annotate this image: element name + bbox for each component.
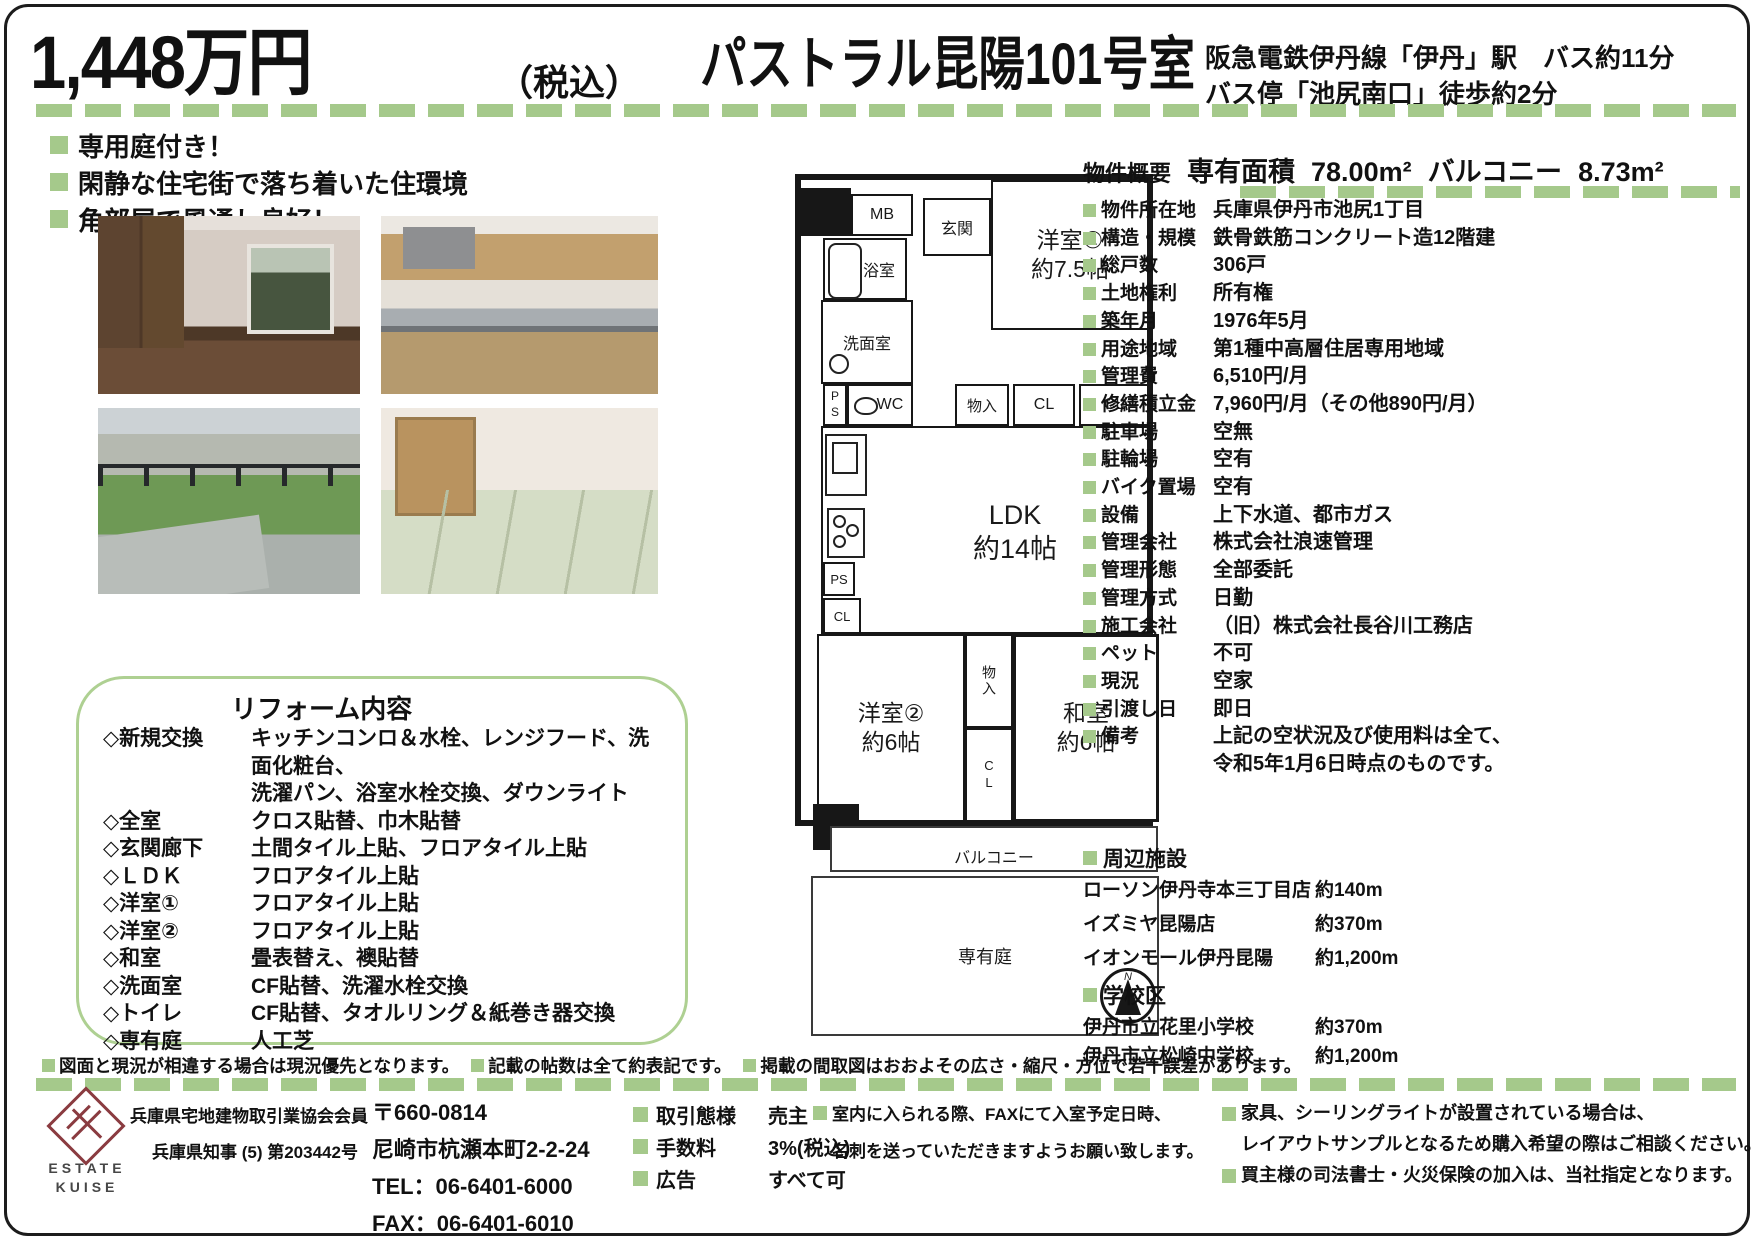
postal-code: 〒660-0814 [372,1094,590,1131]
overview-value: 株式会社浪速管理 [1213,529,1373,557]
room-label: WC [877,396,904,414]
overview-label: 修繕積立金 [1101,391,1213,419]
stove-icon [827,508,865,558]
overview-label: 引渡し日 [1101,696,1213,724]
reform-value: CF貼替、タオルリング＆紙巻き器交換 [251,1000,615,1028]
room-label: PS [830,572,847,587]
disclaimer-item: 図面と現況が相違する場合は現況優先となります。 [42,1053,459,1078]
fax-notice-line1: 室内に入られる際、FAXにて入室予定日時、 [832,1100,1171,1125]
overview-label: 築年月 [1101,308,1213,336]
overview-row: 管理会社株式会社浪速管理 [1083,529,1683,557]
reform-label: ◇専有庭 [103,1028,251,1056]
fax-notice-line2: 名刺を送っていただきますようお願い致します。 [813,1137,1203,1162]
bullet-square-icon [42,1059,55,1072]
bullet-square-icon [1083,647,1096,660]
bullet-square-icon [1083,620,1096,633]
bullet-square-icon [1083,703,1096,716]
bullet-square-icon [633,1107,648,1122]
toilet-icon [854,397,878,415]
room-size: 約6帖 [858,728,925,757]
overview-value: 306戸 [1213,252,1266,280]
disclaimer-item: 記載の帖数は全て約表記です。 [471,1053,731,1078]
reform-value: CF貼替、洗濯水栓交換 [251,973,468,1001]
overview-value: 不可 [1213,640,1253,668]
overview-value: 空家 [1213,668,1253,696]
overview-row: 総戸数306戸 [1083,252,1683,280]
overview-value: 6,510円/月 [1213,363,1309,391]
overview-row: 築年月1976年5月 [1083,308,1683,336]
overview-label: 施工会社 [1101,613,1213,641]
overview-row: 備考上記の空状況及び使用料は全て、 令和5年1月6日時点のものです。 [1083,723,1683,778]
overview-row: バイク置場空有 [1083,474,1683,502]
office-contact: 〒660-0814 尼崎市杭瀬本町2-2-24 TEL：06-6401-6000… [372,1094,590,1242]
balcony-value: 8.73m² [1578,157,1664,188]
school-distance: 約1,200m [1315,1045,1398,1069]
overview-label: 設備 [1101,502,1213,530]
nearby-name: イオンモール伊丹昆陽 [1083,948,1273,969]
access-info: 阪急電鉄伊丹線「伊丹」駅 バス約11分 バス停「池尻南口」徒歩約2分 [1205,40,1675,112]
reform-value: キッチンコンロ＆水栓、レンジフード、洗面化粧台、 洗濯パン、浴室水栓交換、ダウン… [251,725,667,808]
overview-row: 用途地域第1種中高層住居専用地域 [1083,336,1683,364]
room-name: LDK [973,498,1057,532]
reform-label: ◇玄関廊下 [103,835,251,863]
reform-value: フロアタイル上貼 [251,918,419,946]
overview-label: 管理会社 [1101,529,1213,557]
area-label: 専有面積 [1187,150,1295,189]
overview-value: 全部委託 [1213,557,1293,585]
overview-label: 土地権利 [1101,280,1213,308]
overview-value: 空有 [1213,474,1253,502]
overview-label: 駐車場 [1101,419,1213,447]
overview-value: 空有 [1213,446,1253,474]
overview-row: 駐輪場空有 [1083,446,1683,474]
footer-divider [36,1078,1736,1091]
reform-value: フロアタイル上貼 [251,863,419,891]
estate-kuise-logo: ESTATE KUISE [44,1094,130,1204]
overview-row: ペット不可 [1083,640,1683,668]
bullet-square-icon [813,1106,827,1120]
bathtub-icon [828,243,862,299]
floorplan-room-genkan: 玄関 [923,198,991,256]
association-member: 兵庫県宅地建物取引業協会会員 [130,1102,368,1127]
photo-japanese-room [381,408,658,594]
room-size: 約14帖 [973,532,1057,566]
overview-label: 管理方式 [1101,585,1213,613]
nearby-distance: 約370m [1315,913,1383,937]
overview-section-label: 物件概要 [1083,156,1171,188]
overview-value: 兵庫県伊丹市池尻1丁目 [1213,197,1424,225]
bullet-square-icon [1083,481,1096,494]
office-fax: FAX：06-6401-6010 [372,1205,590,1242]
overview-value: 鉄骨鉄筋コンクリート造12階建 [1213,225,1495,253]
price: 1,448万円 [30,22,311,104]
floorplan-ps: PS [823,384,847,426]
overview-header: 物件概要 専有面積 78.00m² バルコニー 8.73m² [1083,150,1664,189]
room-label: 物入 [979,665,999,697]
overview-row: 設備上下水道、都市ガス [1083,502,1683,530]
floorplan-closet: CL [823,598,861,634]
school-item: 伊丹市立花里小学校約370m [1083,1016,1683,1045]
nearby-item: ローソン伊丹寺本三丁目店約140m [1083,879,1683,913]
bullet-square-icon [1083,730,1096,743]
room-label: CL [982,758,997,792]
overview-label: 構造・規模 [1101,225,1213,253]
nearby-distance: 約1,200m [1315,947,1398,971]
overview-row: 土地権利所有権 [1083,280,1683,308]
floorplan-wc: WC [847,384,913,426]
bullet-square-icon [743,1059,756,1072]
term-value: すべて可 [768,1164,846,1193]
furniture-notice-line1: 家具、シーリングライトが設置されている場合は、 [1241,1098,1654,1129]
nearby-item: イオンモール伊丹昆陽約1,200m [1083,947,1683,981]
overview-row: 引渡し日即日 [1083,696,1683,724]
bullet-square-icon [1083,592,1096,605]
office-tel: TEL：06-6401-6000 [372,1168,590,1205]
term-label: 手数料 [656,1132,760,1161]
disclaimer-text: 掲載の間取図はおおよその広さ・縮尺・方位で若干誤差があります。 [760,1053,1301,1078]
bullet-square-icon [1083,426,1096,439]
overview-label: 用途地域 [1101,336,1213,364]
overview-row: 駐車場空無 [1083,419,1683,447]
bullet-square-icon [1083,370,1096,383]
overview-row: 構造・規模鉄骨鉄筋コンクリート造12階建 [1083,225,1683,253]
nearby-name: ローソン伊丹寺本三丁目店 [1083,880,1311,901]
reform-label: ◇和室 [103,945,251,973]
room-label: 物入 [967,395,997,416]
overview-label: 現況 [1101,668,1213,696]
overview-value: 上下水道、都市ガス [1213,502,1393,530]
room-label: LDK 約14帖 [973,498,1057,566]
overview-row: 管理費6,510円/月 [1083,363,1683,391]
room-label: バルコニー [954,844,1034,868]
overview-value: （旧）株式会社長谷川工務店 [1213,613,1473,641]
bullet-square-icon [1083,988,1097,1002]
bullet-square-icon [1083,536,1096,549]
bullet-square-icon [50,210,68,228]
room-label: PS [828,389,842,421]
floorplan-storage: 物入 [965,634,1013,728]
insurance-notice: 買主様の司法書士・火災保険の加入は、当社指定となります。 [1241,1160,1743,1191]
room-label: MB [870,206,894,224]
access-line-1: 阪急電鉄伊丹線「伊丹」駅 バス約11分 [1205,40,1675,76]
reform-value: 畳表替え、襖貼替 [251,945,419,973]
bullet-square-icon [1083,232,1096,245]
room-label: CL [1034,396,1054,414]
bullet-square-icon [1083,398,1096,411]
overview-label: ペット [1101,640,1213,668]
nearby-item: イズミヤ昆陽店約370m [1083,913,1683,947]
reform-label: ◇洋室② [103,918,251,946]
feature-item: 閑静な住宅街で落ち着いた住環境 [50,167,690,197]
reform-value: 人工芝 [251,1028,314,1056]
office-address: 尼崎市杭瀬本町2-2-24 [372,1131,590,1168]
reform-label: ◇洋室① [103,890,251,918]
bullet-square-icon [50,173,68,191]
furniture-notice-line2: レイアウトサンプルとなるため購入希望の際はご相談ください。 [1222,1129,1754,1160]
header-divider [36,104,1736,117]
bullet-square-icon [1083,675,1096,688]
disclaimer-text: 記載の帖数は全て約表記です。 [488,1053,731,1078]
floorplan-storage: 物入 [955,384,1009,426]
overview-row: 管理方式日勤 [1083,585,1683,613]
room-label: 洗面室 [843,330,891,354]
kitchen-counter-icon [825,434,867,496]
term-label: 広告 [656,1164,760,1193]
overview-value: 即日 [1213,696,1253,724]
photo-living-room [98,216,360,394]
bullet-square-icon [1083,259,1096,272]
bullet-square-icon [1222,1169,1236,1183]
disclaimer-item: 掲載の間取図はおおよその広さ・縮尺・方位で若干誤差があります。 [743,1053,1301,1078]
right-notices: 家具、シーリングライトが設置されている場合は、 レイアウトサンプルとなるため購入… [1222,1098,1754,1191]
disclaimer-text: 図面と現況が相違する場合は現況優先となります。 [59,1053,459,1078]
reform-value: フロアタイル上貼 [251,890,419,918]
nearby-title: 周辺施設 [1103,843,1187,873]
photo-kitchen [381,216,658,394]
fax-notice: 室内に入られる際、FAXにて入室予定日時、 名刺を送っていただきますようお願い致… [813,1100,1203,1162]
term-value: 売主 [768,1100,808,1129]
floorplan-closet: CL [965,728,1013,822]
room-label: CL [834,609,851,624]
overview-label: バイク置場 [1101,474,1213,502]
area-value: 78.00m² [1311,157,1412,188]
reform-label: ◇ＬＤＫ [103,863,251,891]
reform-value: 土間タイル上貼、フロアタイル上貼 [251,835,587,863]
room-name: 洋室② [858,699,925,728]
reform-title: リフォーム内容 [103,693,667,725]
license-number: 兵庫県知事 (5) 第203442号 [152,1138,358,1163]
overview-label: 物件所在地 [1101,197,1213,225]
property-name: パストラル昆陽101号室 [700,26,1195,104]
reform-value: クロス貼替、巾木貼替 [251,808,461,836]
feature-text: 閑静な住宅街で落ち着いた住環境 [78,164,468,201]
overview-label: 管理費 [1101,363,1213,391]
overview-value: 所有権 [1213,280,1273,308]
nearby-name: イズミヤ昆陽店 [1083,914,1215,935]
overview-label: 駐輪場 [1101,446,1213,474]
bullet-square-icon [633,1139,648,1154]
overview-value: 1976年5月 [1213,308,1309,336]
bullet-square-icon [1083,564,1096,577]
floorplan-room-yoshitsu2: 洋室② 約6帖 [817,634,965,822]
reform-box: リフォーム内容 ◇新規交換キッチンコンロ＆水栓、レンジフード、洗面化粧台、 洗濯… [76,676,688,1045]
overview-value: 空無 [1213,419,1253,447]
floorplan-room-washroom: 洗面室 [821,300,913,384]
reform-label: ◇洗面室 [103,973,251,1001]
feature-item: 専用庭付き！ [50,130,690,160]
bullet-square-icon [1083,287,1096,300]
feature-text: 専用庭付き！ [78,127,234,164]
overview-row: 施工会社（旧）株式会社長谷川工務店 [1083,613,1683,641]
bullet-square-icon [1083,204,1096,217]
bullet-square-icon [633,1171,648,1186]
bullet-square-icon [471,1059,484,1072]
overview-table: 物件所在地兵庫県伊丹市池尻1丁目 構造・規模鉄骨鉄筋コンクリート造12階建 総戸… [1083,197,1683,779]
overview-label: 総戸数 [1101,252,1213,280]
reform-label: ◇トイレ [103,1000,251,1028]
floorplan-room-mb: MB [851,194,913,236]
bullet-square-icon [1083,851,1097,865]
reform-label: ◇全室 [103,808,251,836]
overview-row: 現況空家 [1083,668,1683,696]
bullet-square-icon [1222,1107,1236,1121]
logo-diamond-icon [46,1086,125,1165]
bullet-square-icon [1083,315,1096,328]
photo-private-garden [98,408,360,594]
bullet-square-icon [1083,509,1096,522]
wall-block [797,188,851,236]
logo-text-line2: KUISE [44,1179,130,1195]
overview-value: 第1種中高層住居専用地域 [1213,336,1444,364]
overview-row: 修繕積立金7,960円/月（その他890円/月） [1083,391,1683,419]
kitchen-sink-icon [832,442,858,474]
sink-icon [829,354,849,374]
school-name: 伊丹市立花里小学校 [1083,1017,1254,1038]
balcony-label: バルコニー [1428,150,1562,189]
room-label: 専有庭 [958,943,1012,969]
school-title: 学校区 [1103,980,1166,1010]
disclaimer-row: 図面と現況が相違する場合は現況優先となります。 記載の帖数は全て約表記です。 掲… [42,1053,1301,1078]
bullet-square-icon [1083,343,1096,356]
logo-text-line1: ESTATE [44,1160,130,1176]
bullet-square-icon [1083,453,1096,466]
tax-note: （税込） [497,54,641,106]
bullet-square-icon [50,136,68,154]
reform-label: ◇新規交換 [103,725,251,808]
floorplan-closet: CL [1013,384,1075,426]
floorplan-room-bath: 浴室 [823,238,907,300]
room-label: 浴室 [863,257,895,281]
overview-value: 日勤 [1213,585,1253,613]
nearby-section: 周辺施設 ローソン伊丹寺本三丁目店約140m イズミヤ昆陽店約370m イオンモ… [1083,843,1683,981]
room-label: 洋室② 約6帖 [858,699,925,757]
overview-row: 物件所在地兵庫県伊丹市池尻1丁目 [1083,197,1683,225]
floorplan-ps: PS [823,562,855,596]
room-label: 玄関 [941,215,973,239]
term-row: 広告すべて可 [633,1162,850,1194]
overview-label: 管理形態 [1101,557,1213,585]
photo-grid [98,216,658,594]
overview-label: 備考 [1101,723,1213,751]
nearby-distance: 約140m [1315,879,1383,903]
overview-row: 管理形態全部委託 [1083,557,1683,585]
overview-value: 7,960円/月（その他890円/月） [1213,391,1488,419]
term-label: 取引態様 [656,1100,760,1129]
overview-value: 上記の空状況及び使用料は全て、 令和5年1月6日時点のものです。 [1213,723,1512,778]
school-distance: 約370m [1315,1016,1383,1040]
